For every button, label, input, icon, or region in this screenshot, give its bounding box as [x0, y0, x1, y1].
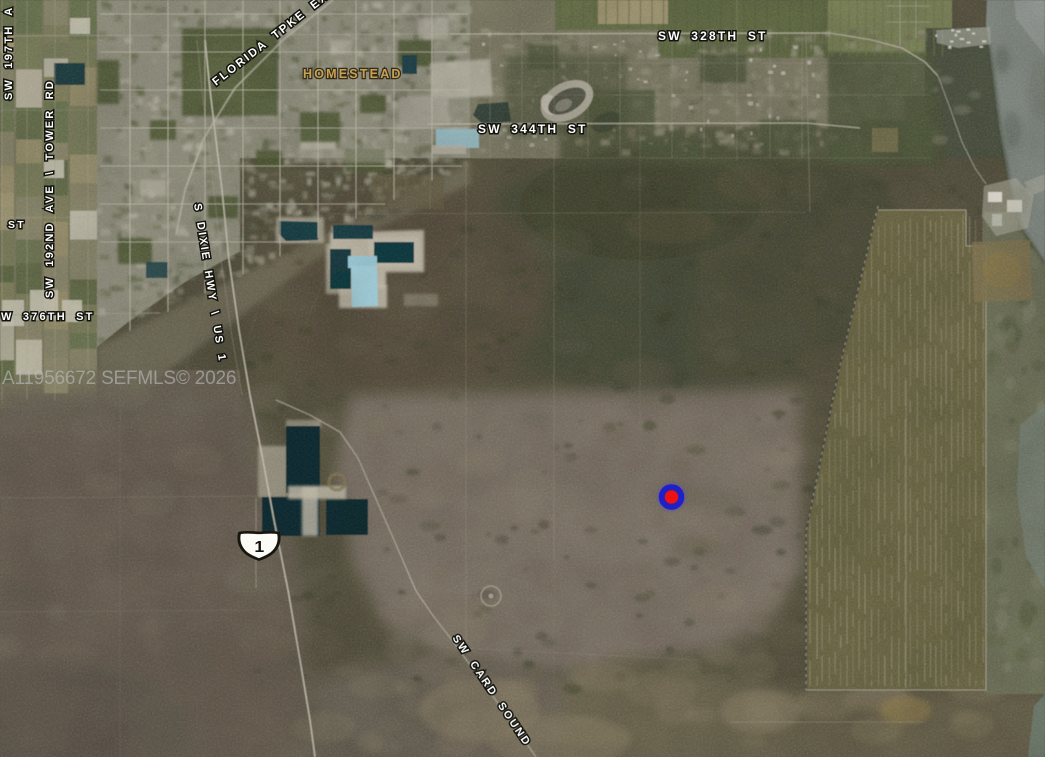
- svg-text:A11956672 SEFMLS© 2026: A11956672 SEFMLS© 2026: [2, 368, 236, 389]
- svg-text:SW 344TH ST: SW 344TH ST: [478, 122, 588, 136]
- svg-text:SW 192ND AVE \ TOWER RD: SW 192ND AVE \ TOWER RD: [44, 79, 56, 298]
- svg-text:W 376TH ST: W 376TH ST: [1, 311, 95, 323]
- svg-text:ST: ST: [8, 219, 26, 231]
- svg-text:1: 1: [254, 538, 264, 556]
- svg-text:SW 328TH ST: SW 328TH ST: [658, 29, 768, 43]
- svg-text:HOMESTEAD: HOMESTEAD: [303, 67, 403, 81]
- svg-text:SW 197TH A: SW 197TH A: [3, 6, 15, 100]
